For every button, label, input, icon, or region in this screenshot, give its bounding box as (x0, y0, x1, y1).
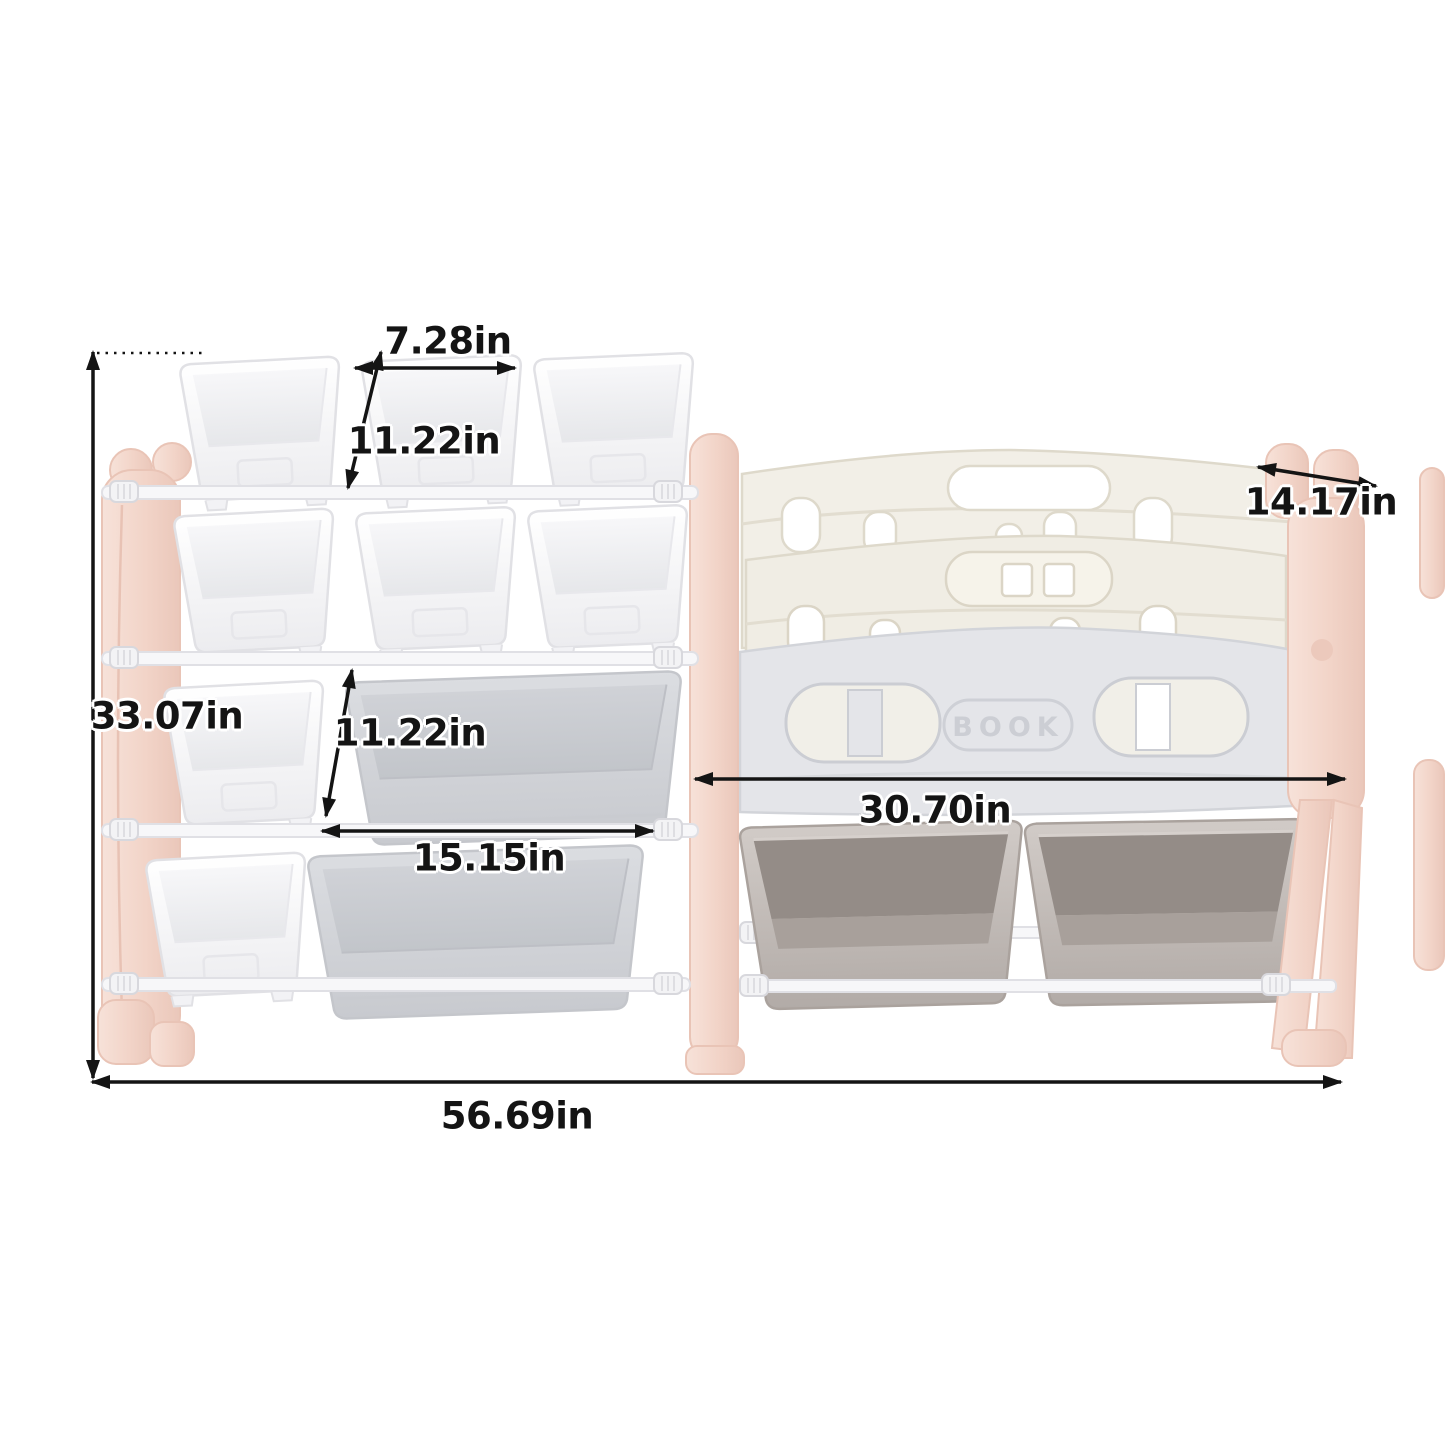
shelf-rail (102, 652, 698, 665)
shelf-rail (744, 980, 1336, 992)
rail-knob (110, 973, 138, 994)
cutout-divider (848, 690, 882, 756)
storage-bin-white (528, 505, 693, 659)
dimension-label-middle-bin-depth: 11.22in (334, 712, 487, 755)
shelf-rail (102, 978, 690, 991)
shelf-rail (102, 486, 698, 499)
rail-knob (1262, 974, 1290, 995)
rail-knob (110, 819, 138, 840)
storage-bin-white (356, 507, 521, 661)
rail-knob (110, 647, 138, 668)
left-support-foot (150, 1022, 194, 1066)
dimension-label-overall-width: 56.69in (441, 1095, 594, 1138)
rail-knob (654, 481, 682, 502)
storage-bin-gray-large (346, 671, 686, 846)
dimension-label-large-bin-width: 15.15in (413, 837, 566, 880)
rear-support-slivers (1414, 468, 1444, 970)
rail-knob (740, 975, 768, 996)
bin-row-2 (174, 505, 693, 664)
dimension-label-overall-height: 33.07in (91, 695, 244, 738)
dimension-label-top-bin-width: 7.28in (384, 320, 511, 363)
rail-knob (654, 819, 682, 840)
bookshelf-front-panel: BOOK (740, 628, 1292, 815)
storage-bin-white (174, 508, 340, 663)
bin-row-4 (146, 845, 648, 1020)
dimension-label-bookshelf-width: 30.70in (859, 789, 1012, 832)
cutout-divider (1136, 684, 1170, 750)
rail-knob (110, 481, 138, 502)
book-emboss-text: BOOK (952, 712, 1063, 743)
left-support-foot (98, 1000, 154, 1064)
dimension-label-top-bin-depth: 11.22in (348, 420, 501, 463)
center-post-foot (686, 1046, 744, 1074)
dimension-diagram: BOOK (0, 0, 1445, 1445)
center-post (686, 434, 744, 1074)
right-support-foot (1282, 1030, 1346, 1066)
rail-knob (654, 647, 682, 668)
rail-knob (654, 973, 682, 994)
dimension-label-shelf-depth: 14.17in (1245, 481, 1398, 524)
